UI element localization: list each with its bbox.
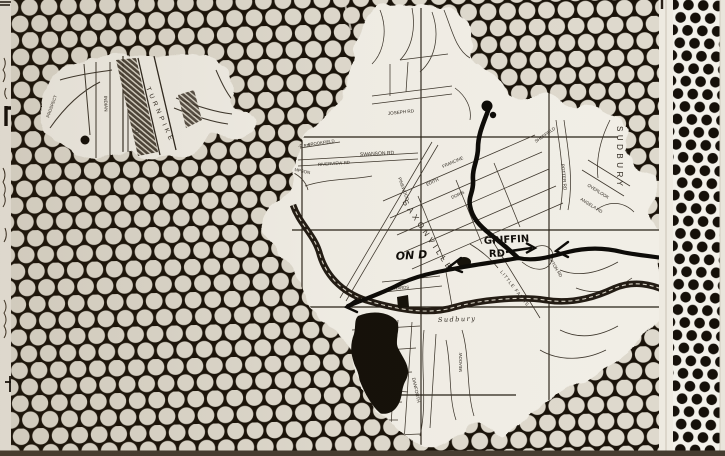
- handwritten-rd: RD: [489, 248, 505, 260]
- street-label-indian: INDIAN: [103, 96, 109, 112]
- right-paper-edge: [720, 0, 725, 451]
- artwork-photo: PROSPECT INDIAN TURNPIKE ST DAVID RD BRO…: [0, 0, 725, 456]
- river-label-sudbury: Sudbury: [438, 315, 477, 324]
- photo-bottom-edge: [0, 451, 725, 456]
- map-dot-symbol: [81, 136, 90, 145]
- street-label-st: ST: [134, 128, 139, 134]
- panel-gap: [659, 0, 673, 451]
- town-label-sudbury: SUDBURY: [615, 126, 624, 189]
- handwritten-note: ON D: [395, 248, 427, 263]
- street-label-meadow: MEADOW: [458, 353, 463, 372]
- artwork-canvas: PROSPECT INDIAN TURNPIKE ST DAVID RD BRO…: [0, 0, 725, 456]
- inverted-dot-strip: [673, 0, 720, 451]
